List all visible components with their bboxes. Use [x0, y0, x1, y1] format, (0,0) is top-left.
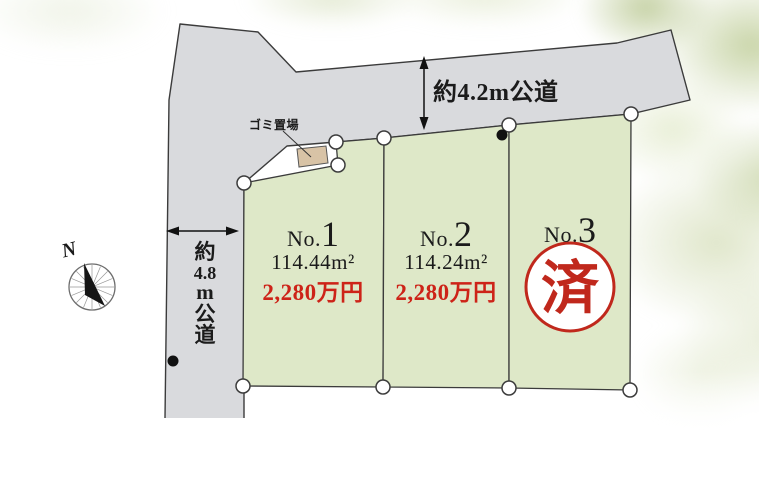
boundary-marker — [236, 379, 250, 393]
plot2-number: No.2 — [420, 216, 472, 252]
plot3-number-prefix: No. — [544, 222, 578, 247]
road-left-label-char: 公 — [195, 304, 216, 326]
plot1-price: 2,280万円 — [262, 273, 363, 307]
boundary-marker — [623, 383, 637, 397]
garbage-area-label: ゴミ置場 — [249, 116, 299, 133]
plot2-number-value: 2 — [454, 214, 472, 254]
compass-icon — [69, 263, 115, 310]
road-left-label-char: m — [196, 282, 214, 304]
road-top-label: 約4.2m公道 — [433, 72, 559, 107]
plot2-area: 114.24m² — [404, 250, 488, 275]
boundary-marker — [502, 381, 516, 395]
road-left-label: 約 4.8 m 公 道 — [194, 242, 217, 347]
survey-dot — [168, 356, 179, 367]
plot1-number-value: 1 — [321, 214, 339, 254]
plot2-price: 2,280万円 — [395, 273, 496, 307]
boundary-marker — [502, 118, 516, 132]
garbage-box — [297, 146, 328, 167]
plot3-number: No.3 — [544, 212, 596, 248]
boundary-marker — [329, 135, 343, 149]
boundary-marker — [376, 380, 390, 394]
boundary-marker — [237, 176, 251, 190]
site-plan-svg — [0, 0, 759, 500]
plot1-number: No.1 — [287, 216, 339, 252]
plot3-sold-stamp-text: 済 — [541, 260, 599, 318]
land-plot-diagram: 約4.2m公道 約 4.8 m 公 道 ゴミ置場 N No.1 114.44m²… — [0, 0, 759, 500]
boundary-marker — [624, 107, 638, 121]
boundary-marker — [377, 131, 391, 145]
plot2-number-prefix: No. — [420, 226, 454, 251]
plot1-area: 114.44m² — [271, 250, 355, 275]
boundary-marker — [331, 158, 345, 172]
plot1-number-prefix: No. — [287, 226, 321, 251]
road-left-label-char: 道 — [195, 325, 216, 347]
survey-dot — [497, 130, 508, 141]
road-left-label-char: 約 — [195, 242, 216, 264]
plot3-number-value: 3 — [578, 210, 596, 250]
